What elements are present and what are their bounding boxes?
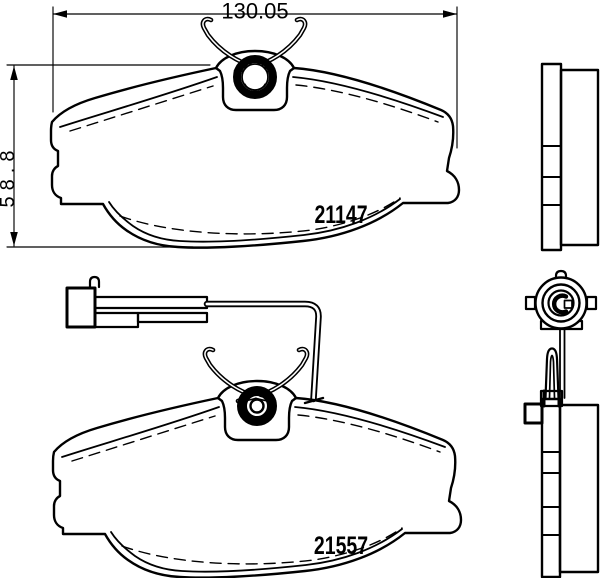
arrowhead-left bbox=[53, 10, 67, 18]
friction-block bbox=[560, 405, 598, 572]
part-number-top: 21147 bbox=[314, 201, 367, 229]
rivet-hole bbox=[251, 400, 264, 413]
arrowhead-up bbox=[10, 66, 18, 80]
sensor-right-tab bbox=[587, 297, 596, 309]
friction-block bbox=[561, 70, 598, 245]
sensor-clip-bracket bbox=[525, 404, 542, 423]
pad-linework bbox=[51, 19, 459, 248]
height-dimension-label: 58.8 bbox=[0, 145, 19, 208]
pad-linework bbox=[53, 349, 461, 578]
top-pad-front-view bbox=[51, 19, 459, 248]
brake-pad-technical-drawing: 130.05 58.8 21147 bbox=[0, 0, 600, 578]
height-dimension: 58.8 bbox=[0, 65, 210, 247]
bottom-pad-front-view bbox=[53, 349, 461, 578]
backplate-strip bbox=[542, 399, 560, 577]
bottom-pad-side-view bbox=[542, 399, 598, 577]
cable-housing-step bbox=[95, 313, 138, 327]
plug-latch bbox=[90, 277, 99, 288]
arrowhead-right bbox=[443, 10, 457, 18]
cable-housing-lower bbox=[138, 313, 207, 322]
width-dimension-label: 130.05 bbox=[221, 0, 288, 24]
sensor-left-tab bbox=[526, 297, 535, 309]
backplate-strip bbox=[542, 64, 561, 250]
sensor-center-nub bbox=[565, 301, 573, 309]
plug-body bbox=[67, 288, 95, 327]
arrowhead-down bbox=[10, 232, 18, 246]
cable-housing-upper bbox=[95, 297, 207, 308]
drawing-canvas: 130.05 58.8 21147 bbox=[0, 0, 600, 578]
part-number-bottom: 21557 bbox=[314, 532, 368, 560]
top-pad-side-view bbox=[542, 64, 598, 250]
